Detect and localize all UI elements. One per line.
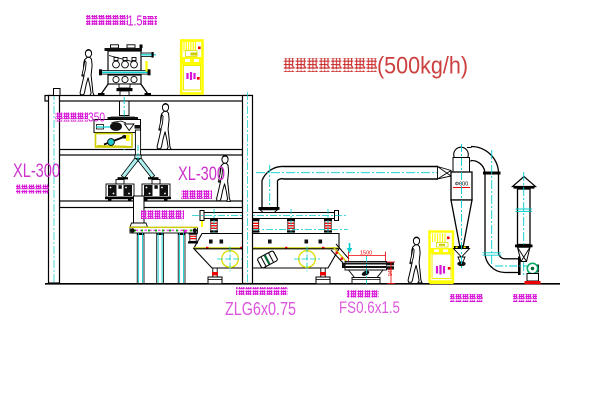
svg-text:XL-300: XL-300 <box>13 161 60 182</box>
svg-text:(500kg/h): (500kg/h) <box>377 53 468 80</box>
svg-text:ZLG6x0.75: ZLG6x0.75 <box>225 299 296 319</box>
svg-text:FS0.6x1.5: FS0.6x1.5 <box>339 298 400 317</box>
svg-text:945: 945 <box>388 267 394 276</box>
svg-text:XL-300: XL-300 <box>178 164 225 185</box>
svg-text:1.5: 1.5 <box>128 13 143 30</box>
svg-text:1500: 1500 <box>360 251 372 257</box>
svg-text:350: 350 <box>88 110 105 125</box>
